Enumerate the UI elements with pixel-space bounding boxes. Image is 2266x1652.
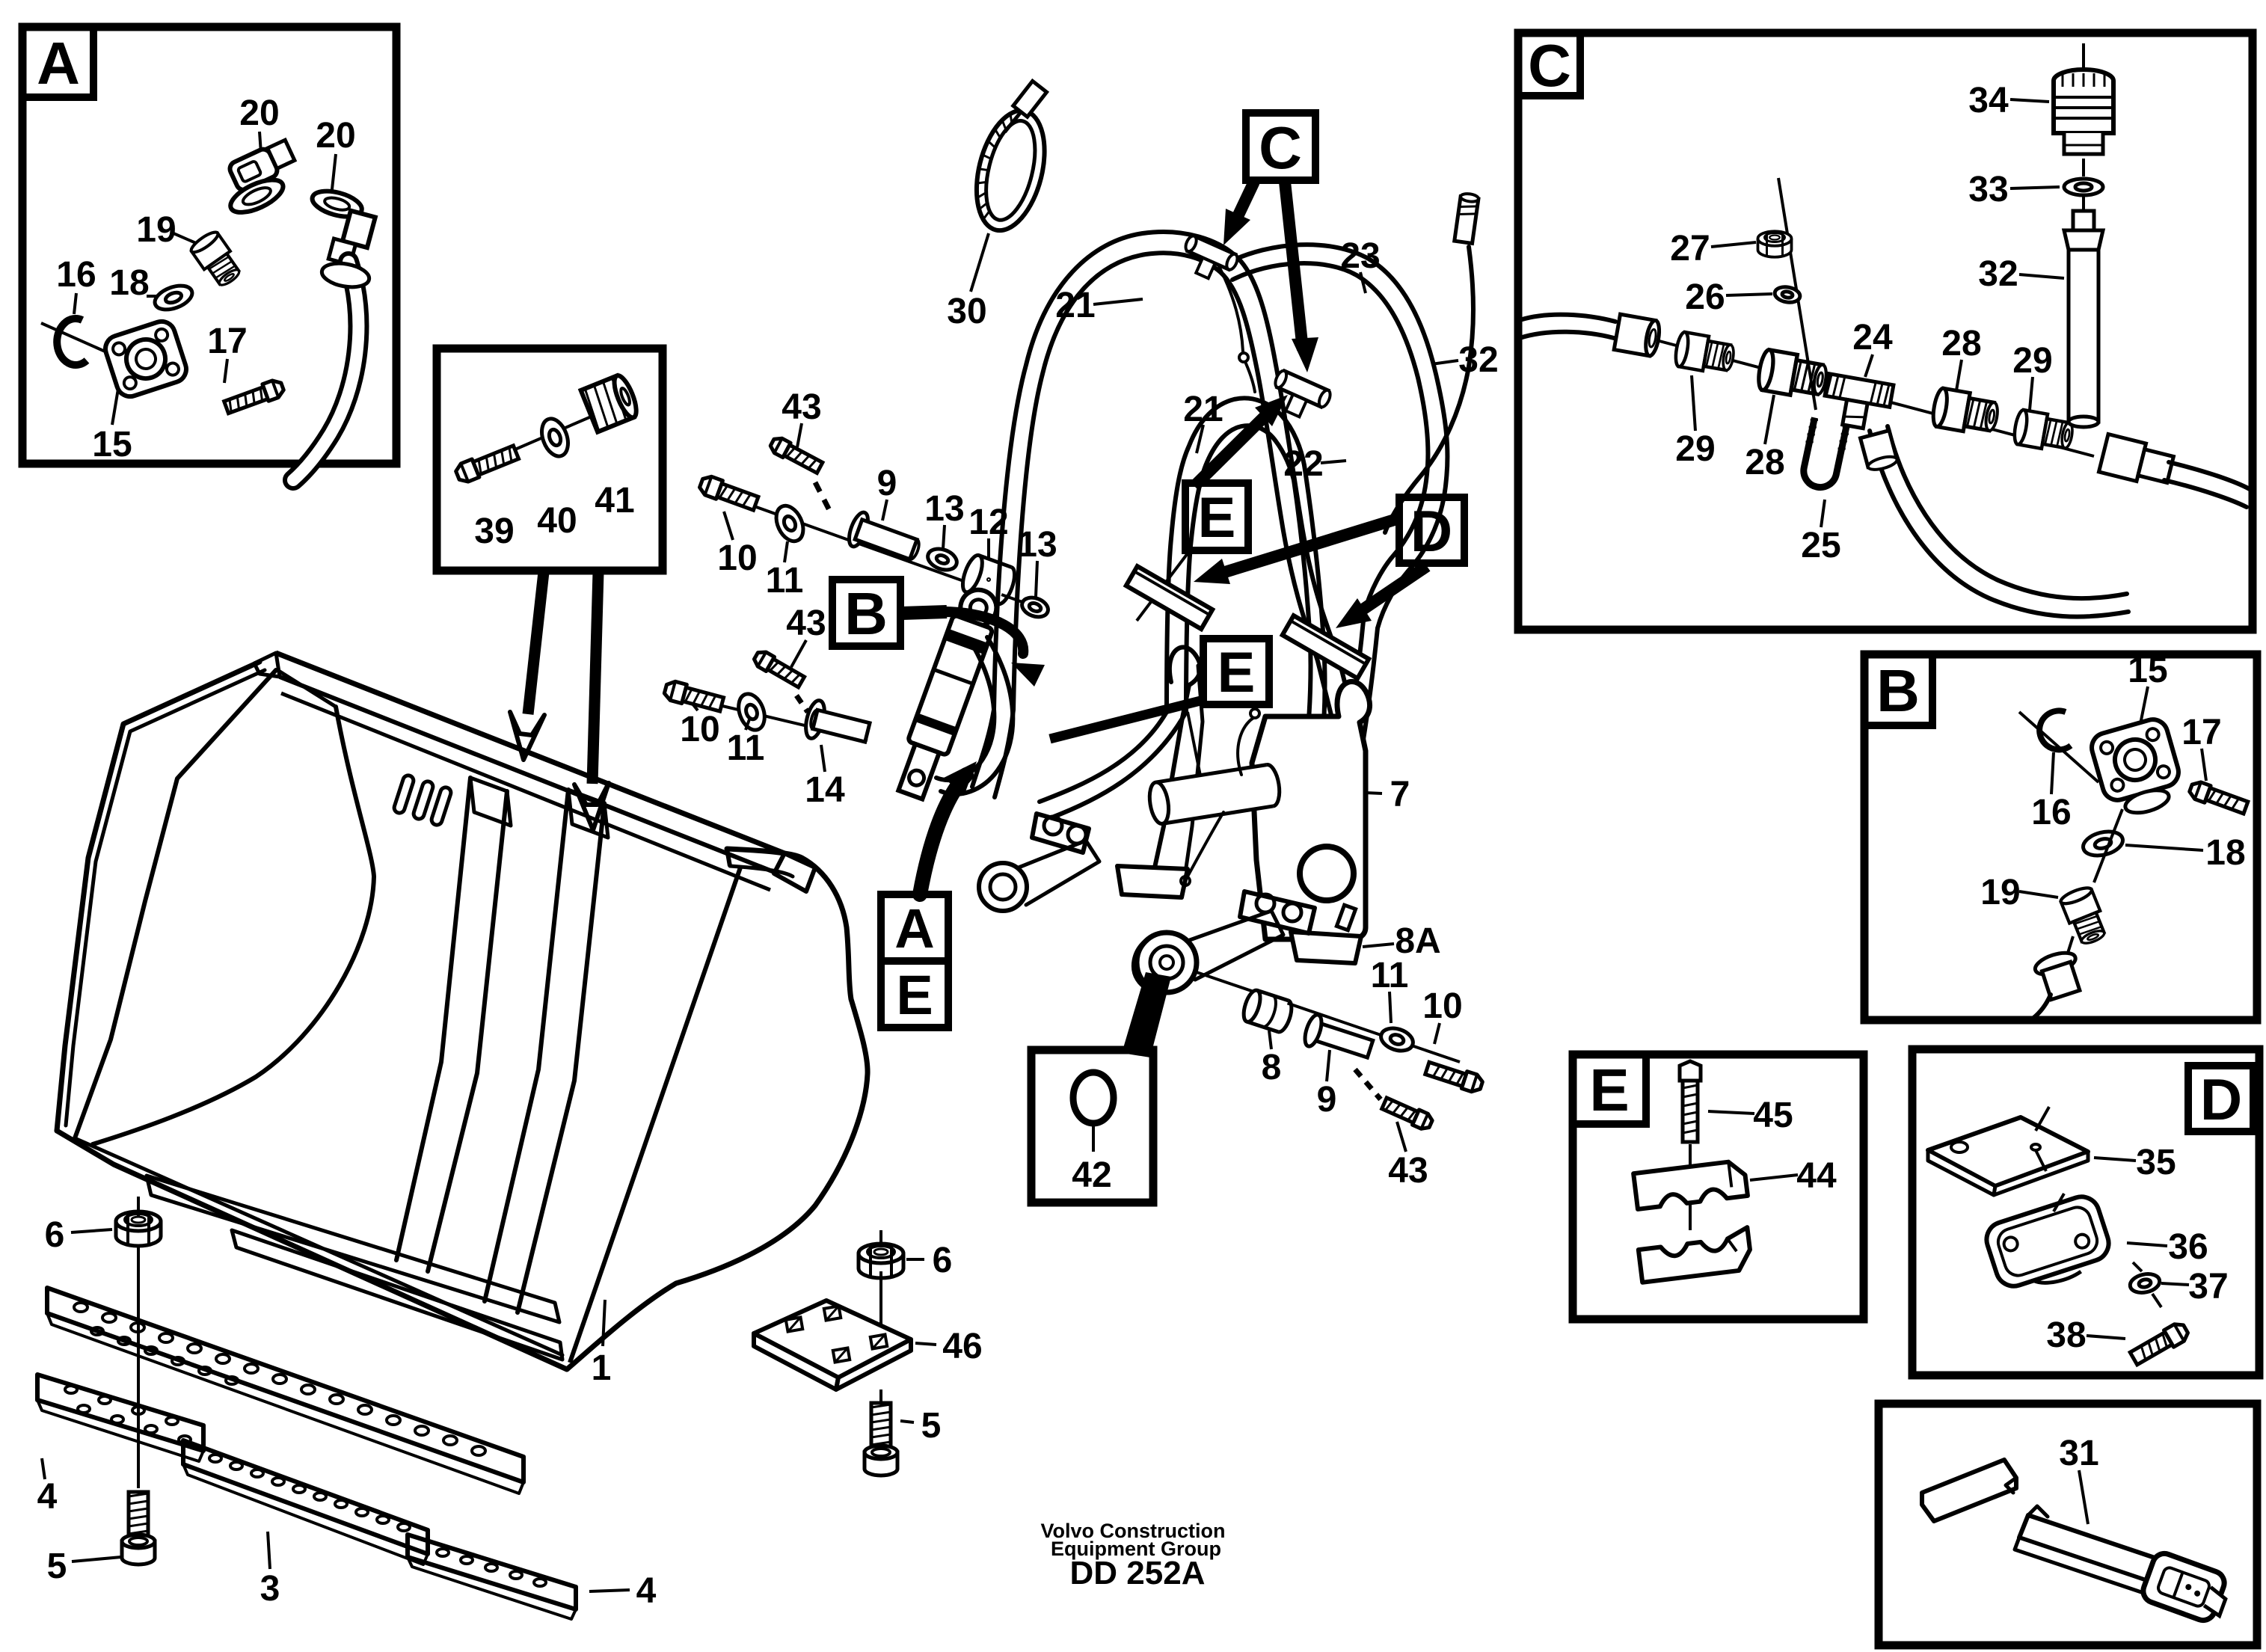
svg-text:31: 31 [2059,1434,2098,1473]
svg-text:28: 28 [1941,324,1981,363]
svg-text:19: 19 [136,210,176,250]
svg-text:46: 46 [942,1327,982,1366]
svg-text:43: 43 [782,387,821,427]
svg-text:10: 10 [680,710,719,749]
svg-text:38: 38 [2046,1315,2086,1355]
svg-text:27: 27 [1670,229,1710,268]
svg-text:11: 11 [1371,956,1409,995]
svg-text:A: A [37,30,80,96]
svg-text:29: 29 [2012,341,2052,381]
svg-text:41: 41 [595,481,634,521]
svg-text:44: 44 [1796,1156,1837,1196]
svg-text:E: E [1218,641,1256,704]
svg-text:26: 26 [1685,277,1725,317]
svg-text:4: 4 [37,1477,58,1517]
svg-text:42: 42 [1072,1155,1111,1195]
svg-text:35: 35 [2136,1143,2176,1182]
svg-text:33: 33 [1968,170,2008,209]
svg-text:17: 17 [207,322,247,361]
svg-text:10: 10 [1422,986,1462,1026]
svg-text:15: 15 [92,425,132,464]
svg-text:3: 3 [260,1569,280,1609]
svg-text:20: 20 [316,116,355,156]
svg-text:8: 8 [1262,1048,1282,1087]
svg-text:18: 18 [109,263,149,303]
svg-text:D: D [2200,1066,2242,1132]
svg-text:10: 10 [717,538,757,578]
svg-text:5: 5 [921,1406,942,1446]
svg-text:6: 6 [933,1241,953,1280]
svg-text:E: E [1198,486,1236,550]
svg-text:20: 20 [239,93,279,133]
svg-text:29: 29 [1675,429,1715,469]
svg-text:43: 43 [786,604,826,643]
svg-text:39: 39 [474,512,514,551]
svg-text:D: D [1410,498,1452,564]
svg-text:23: 23 [1340,236,1380,276]
svg-text:32: 32 [1978,254,2018,294]
svg-text:22: 22 [1283,444,1323,484]
svg-text:24: 24 [1852,318,1893,357]
svg-text:25: 25 [1801,526,1840,565]
svg-text:16: 16 [56,255,96,295]
svg-text:B: B [1876,657,1920,724]
svg-text:E: E [896,964,933,1026]
svg-text:17: 17 [2181,713,2221,752]
svg-text:C: C [1259,114,1302,181]
svg-text:A: A [894,897,934,959]
svg-text:16: 16 [2031,793,2071,832]
svg-text:11: 11 [766,561,804,601]
svg-text:13: 13 [924,489,964,529]
svg-text:40: 40 [537,501,577,541]
svg-text:36: 36 [2168,1227,2208,1267]
svg-text:34: 34 [1968,81,2009,120]
svg-text:C: C [1528,32,1571,99]
svg-text:8A: 8A [1395,921,1440,961]
svg-text:4: 4 [636,1571,657,1611]
svg-text:21: 21 [1183,390,1223,429]
svg-text:18: 18 [2205,833,2245,873]
svg-text:9: 9 [1317,1080,1337,1120]
svg-text:1: 1 [592,1348,612,1388]
svg-text:E: E [1589,1057,1629,1123]
svg-text:45: 45 [1753,1096,1793,1135]
svg-text:37: 37 [2188,1267,2228,1306]
svg-text:9: 9 [877,464,897,503]
svg-text:6: 6 [45,1215,65,1255]
svg-text:30: 30 [947,292,986,331]
svg-text:7: 7 [1390,775,1410,814]
svg-text:11: 11 [727,728,765,768]
svg-text:21: 21 [1055,286,1095,325]
svg-text:5: 5 [47,1547,67,1586]
svg-text:DD 252A: DD 252A [1070,1555,1206,1591]
svg-text:15: 15 [2128,651,2167,690]
svg-text:19: 19 [1980,873,2020,912]
svg-text:43: 43 [1388,1151,1428,1191]
svg-text:B: B [844,580,888,647]
svg-text:28: 28 [1745,443,1784,482]
svg-text:14: 14 [805,770,845,810]
svg-text:32: 32 [1458,340,1498,380]
